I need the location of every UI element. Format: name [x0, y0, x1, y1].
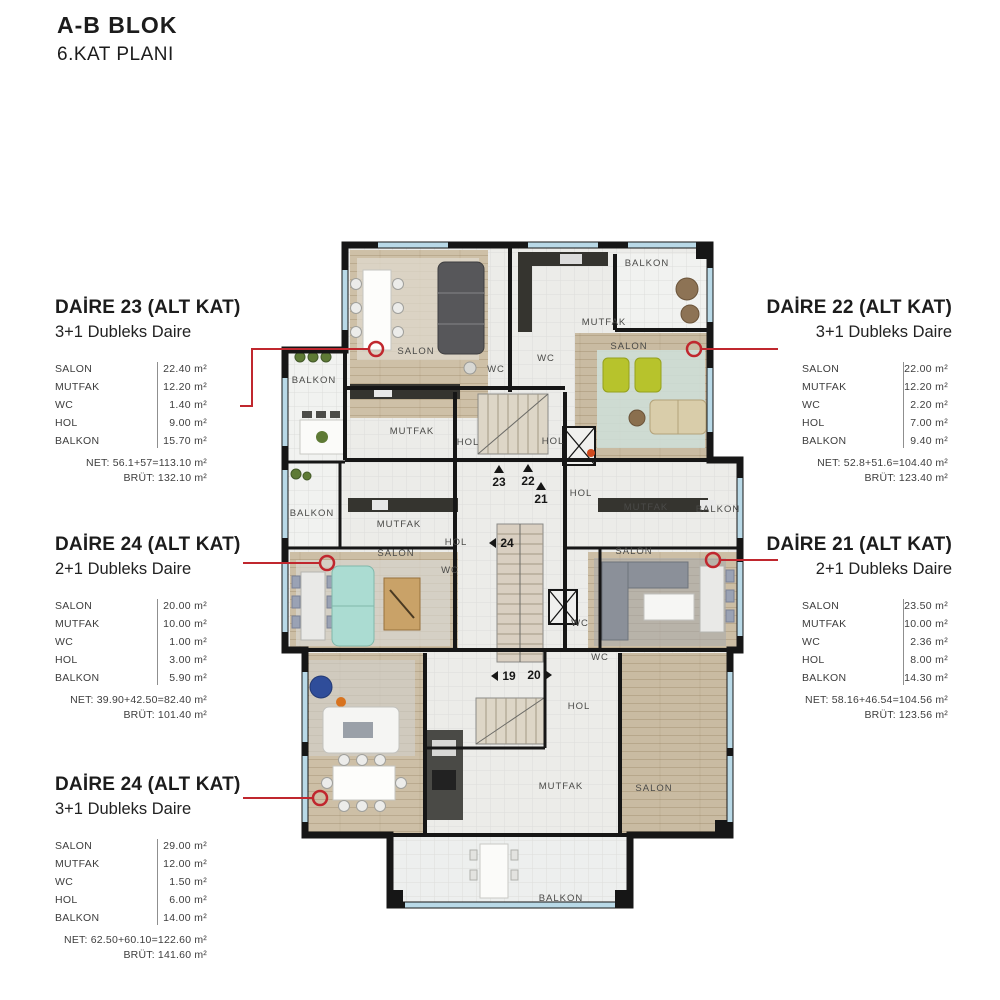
room-area: 23.50 m² [904, 600, 948, 612]
table-row: MUTFAK10.00 m² [802, 615, 948, 633]
table-row: MUTFAK12.00 m² [55, 855, 207, 873]
panel-subtitle: 2+1 Dubleks Daire [55, 560, 215, 579]
panel-daire-22: DAİRE 22 (ALT KAT) 3+1 Dubleks Daire SAL… [692, 297, 952, 486]
room-name: BALKON [55, 672, 169, 684]
room-label-salon: SALON [377, 548, 414, 559]
panel-subtitle: 2+1 Dubleks Daire [692, 560, 952, 579]
unit-number-22: 22 [521, 474, 535, 488]
room-label-mutfak: MUTFAK [582, 317, 627, 328]
room-table: SALON22.00 m² MUTFAK12.20 m² WC2.20 m² H… [692, 360, 952, 450]
unit-number-24: 24 [500, 536, 514, 550]
table-row: SALON29.00 m² [55, 837, 207, 855]
brut-area: BRÜT: 141.60 m² [55, 948, 207, 963]
panel-subtitle: 3+1 Dubleks Daire [55, 323, 215, 342]
room-label-wc: WC [537, 353, 555, 364]
balcony-table-left [300, 411, 344, 454]
room-area: 12.00 m² [163, 858, 207, 870]
table-row: WC2.20 m² [802, 396, 948, 414]
room-area: 1.50 m² [169, 876, 207, 888]
room-area: 20.00 m² [163, 600, 207, 612]
table-row: HOL6.00 m² [55, 891, 207, 909]
table-row: BALKON14.00 m² [55, 909, 207, 927]
unit-number-21: 21 [534, 492, 548, 506]
room-label-wc: WC [571, 618, 589, 629]
room-label-salon: SALON [615, 546, 652, 557]
room-label-wc: WC [487, 364, 505, 375]
table-row: BALKON5.90 m² [55, 669, 207, 687]
table-row: BALKON15.70 m² [55, 432, 207, 450]
salon-daire24-orta [292, 560, 450, 646]
room-area: 12.20 m² [904, 381, 948, 393]
room-label-hol: HOL [542, 436, 565, 447]
room-label-balkon: BALKON [696, 504, 741, 515]
net-area: NET: 62.50+60.10=122.60 m² [55, 933, 207, 948]
room-name: MUTFAK [55, 381, 163, 393]
panel-title: DAİRE 24 (ALT KAT) [55, 774, 215, 796]
brut-area: BRÜT: 123.40 m² [692, 471, 948, 486]
room-area: 9.40 m² [910, 435, 948, 447]
room-area: 8.00 m² [910, 654, 948, 666]
room-area: 12.20 m² [163, 381, 207, 393]
table-row: BALKON9.40 m² [802, 432, 948, 450]
room-name: HOL [55, 417, 169, 429]
room-area: 6.00 m² [169, 894, 207, 906]
room-table: SALON20.00 m² MUTFAK10.00 m² WC1.00 m² H… [55, 597, 215, 687]
room-label-hol: HOL [570, 488, 593, 499]
staircase-bottom [476, 698, 544, 744]
room-area: 29.00 m² [163, 840, 207, 852]
staircase-top [478, 394, 548, 454]
room-name: BALKON [802, 435, 910, 447]
room-name: WC [55, 399, 169, 411]
panel-subtitle: 3+1 Dubleks Daire [55, 800, 215, 819]
room-area: 22.00 m² [904, 363, 948, 375]
table-row: HOL3.00 m² [55, 651, 207, 669]
room-name: HOL [55, 894, 169, 906]
table-row: MUTFAK10.00 m² [55, 615, 207, 633]
room-name: HOL [55, 654, 169, 666]
room-area: 5.90 m² [169, 672, 207, 684]
room-area: 14.00 m² [163, 912, 207, 924]
room-label-mutfak: MUTFAK [377, 519, 422, 530]
panel-title: DAİRE 22 (ALT KAT) [692, 297, 952, 319]
room-name: SALON [55, 840, 163, 852]
room-name: MUTFAK [802, 381, 904, 393]
table-row: WC1.40 m² [55, 396, 207, 414]
table-row: WC2.36 m² [802, 633, 948, 651]
net-area: NET: 52.8+51.6=104.40 m² [692, 456, 948, 471]
room-name: MUTFAK [55, 618, 163, 630]
room-name: SALON [802, 363, 904, 375]
panel-subtitle: 3+1 Dubleks Daire [692, 323, 952, 342]
table-divider [157, 599, 158, 685]
room-name: HOL [802, 654, 910, 666]
room-label-balkon: BALKON [290, 508, 335, 519]
room-area: 2.36 m² [910, 636, 948, 648]
panel-daire-24-alt: DAİRE 24 (ALT KAT) 3+1 Dubleks Daire SAL… [55, 774, 215, 963]
room-name: HOL [802, 417, 910, 429]
panel-title: DAİRE 23 (ALT KAT) [55, 297, 215, 319]
room-label-balkon: BALKON [625, 258, 670, 269]
table-divider [157, 362, 158, 448]
room-area: 22.40 m² [163, 363, 207, 375]
panel-title: DAİRE 24 (ALT KAT) [55, 534, 215, 556]
room-area: 15.70 m² [163, 435, 207, 447]
table-row: HOL8.00 m² [802, 651, 948, 669]
room-label-hol: HOL [568, 701, 591, 712]
room-name: BALKON [55, 912, 163, 924]
net-area: NET: 39.90+42.50=82.40 m² [55, 693, 207, 708]
room-table: SALON29.00 m² MUTFAK12.00 m² WC1.50 m² H… [55, 837, 215, 927]
room-label-wc: WC [591, 652, 609, 663]
panel-daire-24-orta: DAİRE 24 (ALT KAT) 2+1 Dubleks Daire SAL… [55, 534, 215, 723]
table-row: WC1.50 m² [55, 873, 207, 891]
room-name: MUTFAK [802, 618, 904, 630]
room-label-mutfak: MUTFAK [390, 426, 435, 437]
net-area: NET: 56.1+57=113.10 m² [55, 456, 207, 471]
room-area: 3.00 m² [169, 654, 207, 666]
table-row: SALON23.50 m² [802, 597, 948, 615]
room-area: 2.20 m² [910, 399, 948, 411]
room-area: 14.30 m² [904, 672, 948, 684]
room-name: WC [802, 636, 910, 648]
unit-number-23: 23 [492, 475, 506, 489]
room-label-balkon: BALKON [539, 893, 584, 904]
panel-title: DAİRE 21 (ALT KAT) [692, 534, 952, 556]
table-row: SALON22.40 m² [55, 360, 207, 378]
room-label-hol: HOL [445, 537, 468, 548]
unit-number-20: 20 [527, 668, 541, 682]
table-row: MUTFAK12.20 m² [802, 378, 948, 396]
room-area: 10.00 m² [163, 618, 207, 630]
room-label-salon: SALON [610, 341, 647, 352]
table-row: WC1.00 m² [55, 633, 207, 651]
table-divider [157, 839, 158, 925]
table-row: SALON22.00 m² [802, 360, 948, 378]
room-table: SALON23.50 m² MUTFAK10.00 m² WC2.36 m² H… [692, 597, 952, 687]
panel-daire-23: DAİRE 23 (ALT KAT) 3+1 Dubleks Daire SAL… [55, 297, 215, 486]
brut-area: BRÜT: 132.10 m² [55, 471, 207, 486]
room-name: SALON [55, 363, 163, 375]
room-area: 7.00 m² [910, 417, 948, 429]
room-name: BALKON [802, 672, 904, 684]
table-divider [903, 599, 904, 685]
room-table: SALON22.40 m² MUTFAK12.20 m² WC1.40 m² H… [55, 360, 215, 450]
table-row: HOL7.00 m² [802, 414, 948, 432]
room-name: SALON [55, 600, 163, 612]
table-row: SALON20.00 m² [55, 597, 207, 615]
table-row: BALKON14.30 m² [802, 669, 948, 687]
unit-number-19: 19 [502, 669, 516, 683]
room-area: 1.00 m² [169, 636, 207, 648]
room-label-hol: HOL [457, 437, 480, 448]
room-name: MUTFAK [55, 858, 163, 870]
room-label-mutfak: MUTFAK [624, 502, 669, 513]
room-name: WC [55, 876, 169, 888]
room-label-balkon: BALKON [292, 375, 337, 386]
panel-daire-21: DAİRE 21 (ALT KAT) 2+1 Dubleks Daire SAL… [692, 534, 952, 723]
room-name: SALON [802, 600, 904, 612]
table-divider [903, 362, 904, 448]
room-area: 10.00 m² [904, 618, 948, 630]
room-label-wc: WC [441, 565, 459, 576]
table-row: HOL9.00 m² [55, 414, 207, 432]
brut-area: BRÜT: 123.56 m² [692, 708, 948, 723]
room-label-salon: SALON [397, 346, 434, 357]
brut-area: BRÜT: 101.40 m² [55, 708, 207, 723]
room-label-mutfak: MUTFAK [539, 781, 584, 792]
room-label-salon: SALON [635, 783, 672, 794]
room-name: BALKON [55, 435, 163, 447]
room-name: WC [802, 399, 910, 411]
room-area: 1.40 m² [169, 399, 207, 411]
room-area: 9.00 m² [169, 417, 207, 429]
salon-daire22 [597, 350, 706, 448]
table-row: MUTFAK12.20 m² [55, 378, 207, 396]
room-name: WC [55, 636, 169, 648]
fire-extinguisher-dot [587, 449, 595, 457]
net-area: NET: 58.16+46.54=104.56 m² [692, 693, 948, 708]
